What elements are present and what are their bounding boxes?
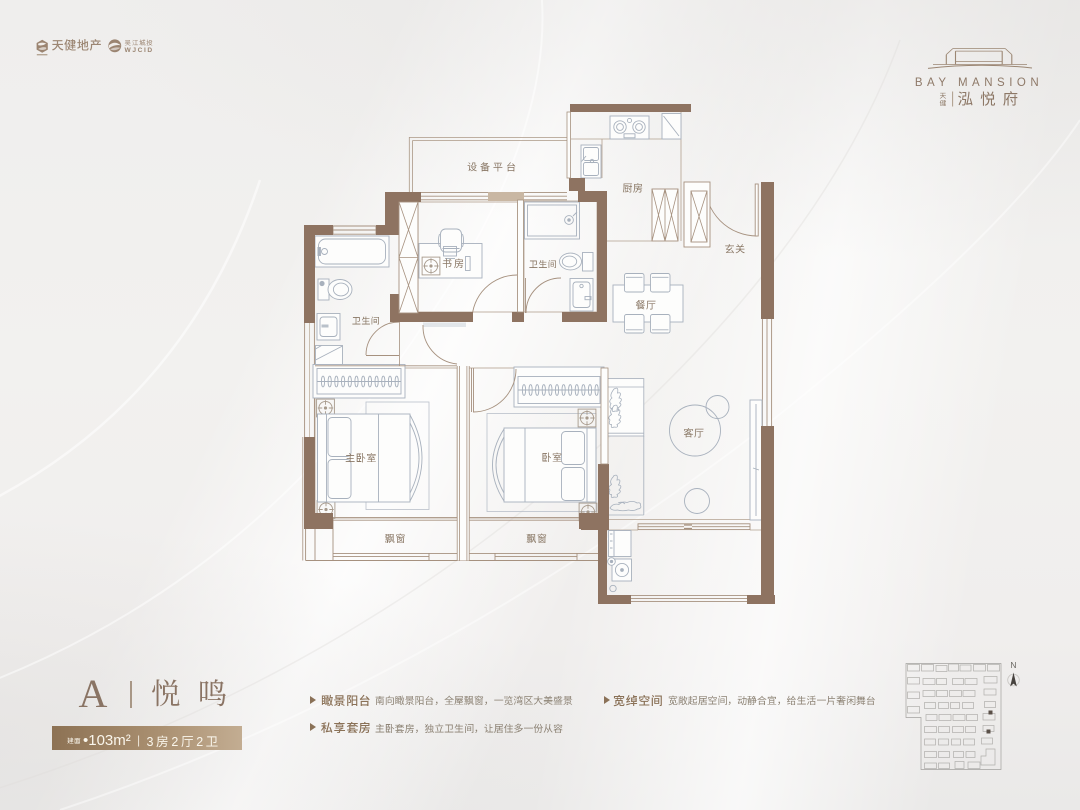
svg-text:餐厅: 餐厅: [636, 297, 657, 312]
svg-text:卫生间: 卫生间: [352, 314, 380, 327]
svg-text:飘窗: 飘窗: [385, 530, 406, 545]
svg-text:玄关: 玄关: [725, 241, 746, 256]
svg-text:N: N: [1010, 659, 1016, 671]
svg-text:卧室: 卧室: [542, 449, 563, 464]
svg-text:飘窗: 飘窗: [527, 530, 548, 545]
svg-text:书房: 书房: [442, 255, 466, 270]
svg-text:卫生间: 卫生间: [529, 258, 557, 271]
svg-text:设备平台: 设备平台: [467, 159, 519, 174]
svg-text:主卧室: 主卧室: [345, 450, 377, 465]
svg-text:厨房: 厨房: [623, 180, 644, 195]
svg-text:客厅: 客厅: [684, 425, 705, 440]
